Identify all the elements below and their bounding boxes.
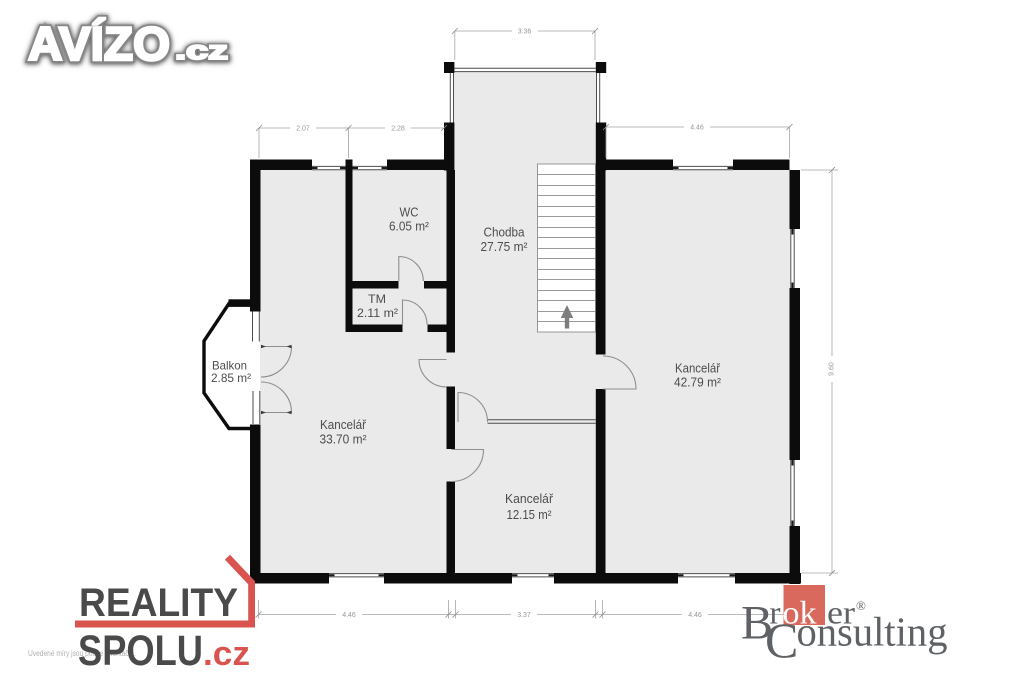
svg-text:SPOLU: SPOLU (78, 627, 203, 675)
svg-text:27.75 m²: 27.75 m² (481, 240, 528, 254)
svg-text:WC: WC (400, 206, 419, 220)
svg-text:C: C (765, 612, 798, 668)
svg-text:4.46: 4.46 (690, 125, 704, 132)
svg-text:2.11 m²: 2.11 m² (357, 306, 398, 320)
svg-text:9.60: 9.60 (829, 362, 836, 376)
svg-text:2.28: 2.28 (391, 126, 405, 133)
svg-text:.cz: .cz (175, 35, 228, 65)
svg-text:Kancelář: Kancelář (505, 492, 554, 506)
svg-text:4.46: 4.46 (688, 612, 702, 619)
svg-text:REALITY: REALITY (79, 581, 238, 625)
svg-text:2.07: 2.07 (296, 126, 310, 133)
svg-text:2.85 m²: 2.85 m² (211, 371, 251, 385)
svg-text:42.79 m²: 42.79 m² (674, 376, 721, 390)
svg-text:TM: TM (368, 292, 386, 306)
svg-text:.cz: .cz (203, 635, 250, 673)
svg-text:Kancelář: Kancelář (675, 362, 721, 376)
svg-text:6.05 m²: 6.05 m² (389, 220, 429, 234)
svg-text:Kancelář: Kancelář (320, 418, 367, 432)
svg-text:12.15 m²: 12.15 m² (507, 508, 552, 522)
svg-text:AVÍZO: AVÍZO (28, 17, 170, 70)
svg-text:33.70 m²: 33.70 m² (320, 433, 367, 447)
svg-text:3.37: 3.37 (517, 612, 531, 619)
svg-text:3.36: 3.36 (518, 29, 532, 36)
svg-text:4.46: 4.46 (342, 612, 356, 619)
svg-text:onsulting: onsulting (797, 609, 948, 655)
svg-text:Chodba: Chodba (484, 226, 525, 240)
